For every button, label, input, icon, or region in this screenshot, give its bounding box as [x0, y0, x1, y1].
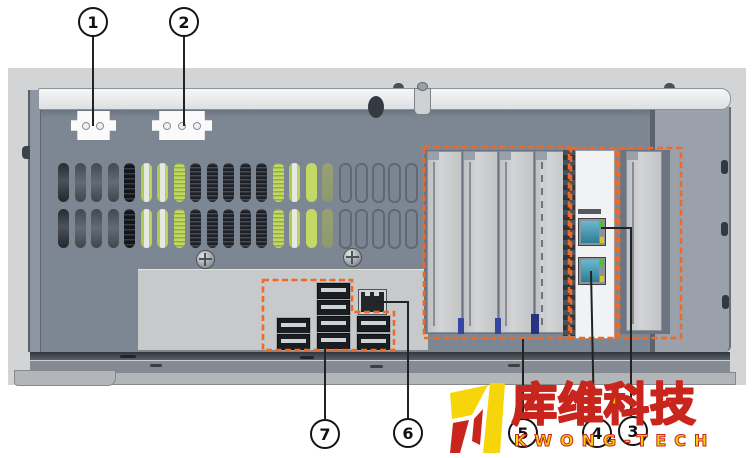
led-green-icon — [600, 221, 604, 227]
chassis-left-clip — [22, 146, 30, 159]
vent-slot — [157, 163, 168, 202]
vent-slot — [306, 163, 317, 202]
vent-slot — [91, 209, 102, 248]
usb-port — [317, 300, 350, 316]
vent-slot — [339, 163, 352, 203]
vent-slot — [124, 163, 135, 202]
vent-slot — [174, 163, 185, 202]
slot-mark — [495, 318, 501, 334]
lan-jack — [581, 221, 599, 243]
vent-slot — [322, 163, 333, 202]
usb-port — [317, 333, 350, 349]
chassis-foot — [14, 370, 116, 386]
logo-k-mark — [450, 383, 506, 453]
screw-icon — [196, 250, 215, 269]
led-green-icon — [600, 260, 604, 266]
usb-port — [357, 334, 390, 350]
vent-slot — [355, 209, 368, 249]
vent-slot — [388, 209, 401, 249]
rail-mark — [370, 365, 383, 368]
top-rail — [38, 88, 731, 110]
led-yellow-icon — [600, 276, 604, 282]
vent-slot — [339, 209, 352, 249]
vent-slot — [256, 163, 267, 202]
vent-slot — [108, 209, 119, 248]
rail-mark — [120, 355, 136, 358]
connector-pin — [178, 122, 186, 130]
vent-slot — [256, 209, 267, 248]
vent-slot — [207, 163, 218, 202]
rail-mark — [300, 356, 314, 359]
vent-slot — [289, 209, 300, 248]
vent-slot — [322, 209, 333, 248]
vent-slot — [240, 209, 251, 248]
vent-slot — [355, 163, 368, 203]
vent-slot — [108, 163, 119, 202]
slot-cover — [626, 151, 662, 331]
lan-card-label — [578, 209, 601, 214]
led-yellow-icon — [600, 237, 604, 243]
callout-1: 1 — [78, 7, 108, 37]
vent-slot — [124, 209, 135, 248]
slot-cover — [499, 151, 534, 333]
rear-panel-diagram: 库维科技 KWONG-TECH 1234567 — [0, 0, 753, 458]
vent-slot — [289, 163, 300, 202]
vent-slot — [58, 209, 69, 248]
watermark-text-en: KWONG-TECH — [514, 431, 715, 450]
vent-slot — [91, 163, 102, 202]
vent-slot — [223, 163, 234, 202]
slot-mark — [458, 318, 464, 334]
vent-slot — [405, 163, 418, 203]
screw-icon — [343, 248, 362, 267]
side-clip — [721, 160, 728, 174]
callout-6: 6 — [393, 418, 423, 448]
vent-slot — [141, 163, 152, 202]
slot-cover — [463, 151, 498, 333]
thumbscrew-knob — [368, 96, 384, 118]
connector-pin — [193, 122, 201, 130]
vent-slot — [75, 209, 86, 248]
vent-slot — [141, 209, 152, 248]
callout-2: 2 — [169, 7, 199, 37]
ethernet-port — [358, 289, 387, 315]
vent-slot — [405, 209, 418, 249]
power-connector-2pin — [71, 111, 116, 140]
watermark-logo: 库维科技 KWONG-TECH — [450, 381, 730, 456]
rail-mark — [508, 364, 520, 367]
card-slot-opening — [563, 150, 575, 336]
lan-port-bottom — [578, 257, 606, 285]
vent-slot — [273, 163, 284, 202]
vent-slot — [273, 209, 284, 248]
lan-port-top — [578, 218, 606, 246]
vent-slot — [190, 163, 201, 202]
lan-jack — [581, 260, 599, 282]
vent-slot — [372, 163, 385, 203]
connector-pin — [163, 122, 171, 130]
vent-slot — [207, 209, 218, 248]
connector-pin — [96, 122, 104, 130]
rail-mark — [150, 364, 162, 367]
usb-port — [317, 283, 350, 299]
vent-slot — [240, 163, 251, 202]
vent-slot — [58, 163, 69, 202]
side-clip — [722, 295, 729, 309]
vent-slot — [388, 163, 401, 203]
usb-port — [317, 316, 350, 332]
vent-slot — [157, 209, 168, 248]
callout-7: 7 — [310, 419, 340, 449]
slot-cover — [427, 151, 462, 333]
slot-mark — [531, 314, 539, 334]
vent-slot — [75, 163, 86, 202]
rail-clip — [414, 88, 431, 115]
usb-port — [357, 316, 390, 332]
usb-port — [277, 318, 310, 334]
vent-slot — [190, 209, 201, 248]
vent-slot — [223, 209, 234, 248]
vent-slot — [372, 209, 385, 249]
side-clip — [721, 222, 728, 236]
vent-slot — [306, 209, 317, 248]
vent-slot — [174, 209, 185, 248]
connector-pin — [82, 122, 90, 130]
usb-port — [277, 334, 310, 350]
watermark-text-cn: 库维科技 — [512, 381, 696, 429]
rail-clip-screw — [417, 82, 428, 91]
